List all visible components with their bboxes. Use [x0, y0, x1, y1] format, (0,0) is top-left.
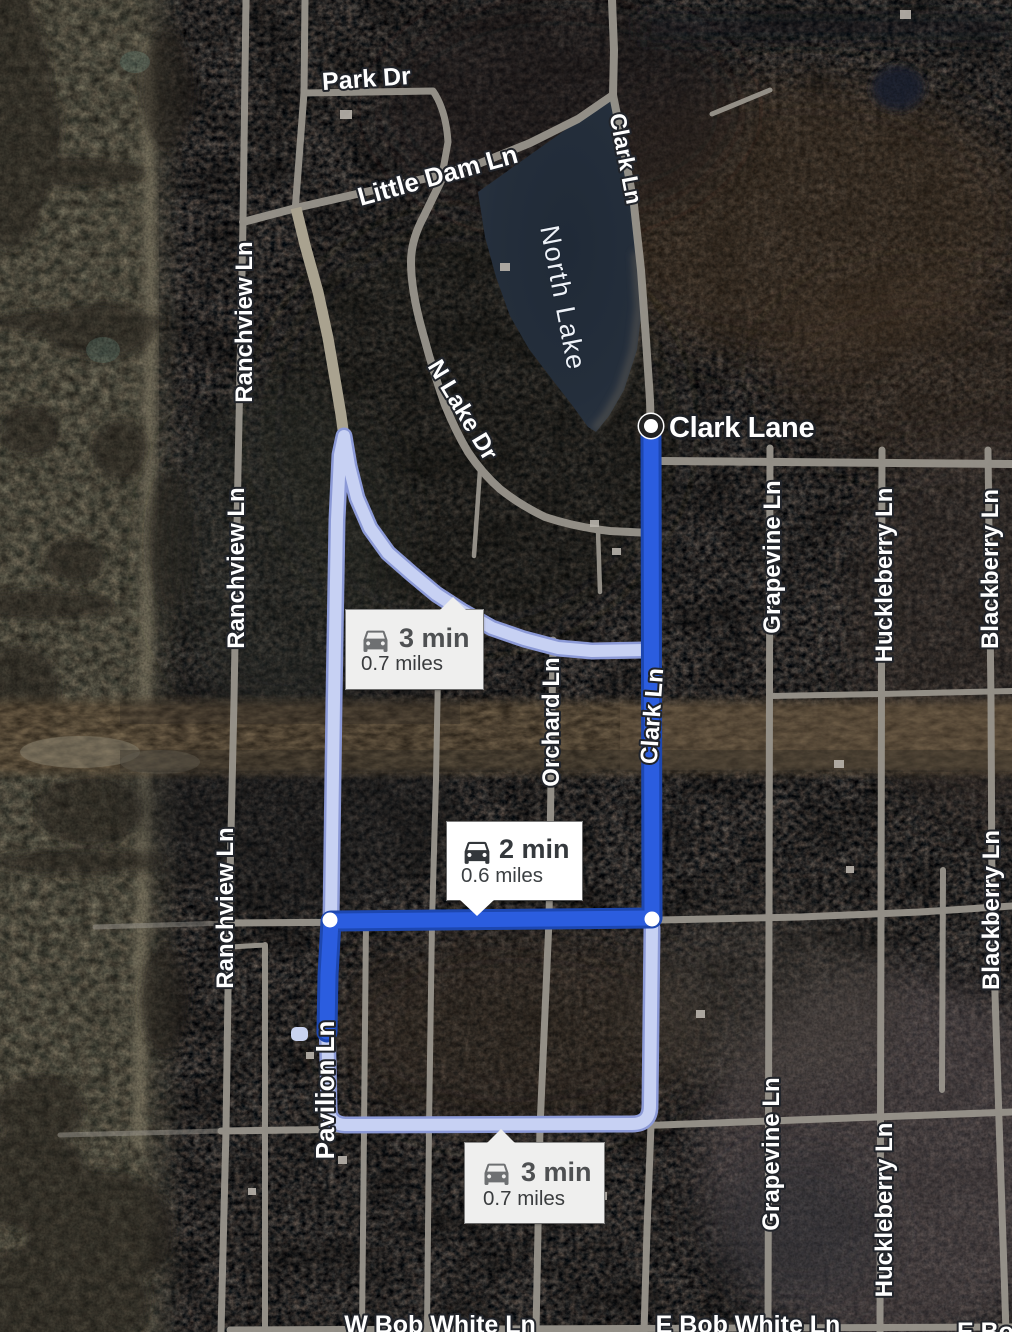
svg-text:E Bob White Ln: E Bob White Ln	[957, 1318, 1012, 1332]
svg-text:Clark Lane: Clark Lane	[669, 412, 814, 444]
svg-text:Pavilion Ln: Pavilion Ln	[310, 1021, 340, 1160]
svg-text:Grapevine Ln: Grapevine Ln	[758, 1077, 785, 1230]
svg-text:Blackberry Ln: Blackberry Ln	[978, 830, 1005, 990]
svg-text:E Bob White Ln: E Bob White Ln	[656, 1311, 841, 1332]
svg-text:Huckleberry Ln: Huckleberry Ln	[871, 488, 898, 663]
svg-text:W Bob White Ln: W Bob White Ln	[344, 1311, 536, 1332]
svg-text:Ranchview Ln: Ranchview Ln	[212, 827, 239, 988]
svg-text:Blackberry Ln: Blackberry Ln	[977, 489, 1004, 649]
svg-text:Ranchview Ln: Ranchview Ln	[223, 487, 250, 648]
svg-text:Ranchview Ln: Ranchview Ln	[231, 241, 258, 402]
svg-text:Grapevine Ln: Grapevine Ln	[759, 480, 786, 633]
svg-text:Orchard Ln: Orchard Ln	[538, 657, 565, 786]
svg-text:Huckleberry Ln: Huckleberry Ln	[871, 1123, 898, 1298]
